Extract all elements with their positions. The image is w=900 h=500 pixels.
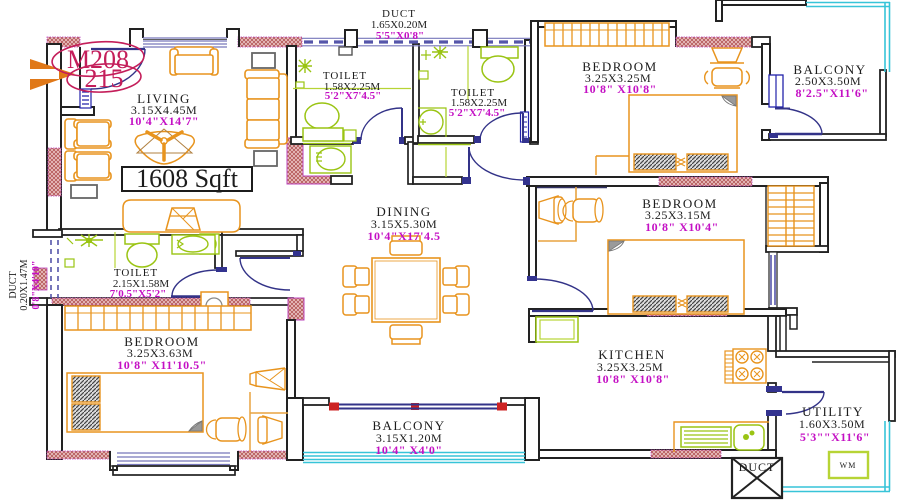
svg-text:7'0.5"X5'2": 7'0.5"X5'2" [110, 288, 167, 300]
svg-text:10'4"X17'4.5: 10'4"X17'4.5 [368, 229, 441, 243]
svg-text:DUCT: DUCT [739, 460, 776, 474]
svg-text:8'2.5"X11'6": 8'2.5"X11'6" [796, 86, 869, 100]
svg-text:1608 Sqft: 1608 Sqft [136, 164, 239, 193]
svg-text:10'8" X10'8": 10'8" X10'8" [596, 372, 670, 386]
svg-text:DUCT: DUCT [8, 271, 19, 298]
svg-text:215: 215 [85, 64, 124, 93]
svg-text:0.20X1.47M: 0.20X1.47M [19, 259, 30, 310]
svg-text:5'3""X11'6": 5'3""X11'6" [800, 430, 870, 444]
svg-text:WM: WM [840, 461, 857, 470]
svg-text:5'2"X7'4.5": 5'2"X7'4.5" [449, 107, 506, 119]
svg-text:5'5"X0'8": 5'5"X0'8" [376, 30, 424, 42]
svg-text:10'8" X10'8": 10'8" X10'8" [583, 82, 657, 96]
svg-text:5'2"X7'4.5": 5'2"X7'4.5" [325, 90, 382, 102]
svg-text:1.60X3.50M: 1.60X3.50M [799, 417, 865, 431]
svg-text:10'8" X11'10.5": 10'8" X11'10.5" [117, 358, 207, 372]
svg-text:0'8"X4'10": 0'8"X4'10" [31, 261, 42, 310]
svg-text:10'8" X10'4": 10'8" X10'4" [645, 220, 719, 234]
svg-text:10'4"X14'7": 10'4"X14'7" [129, 114, 199, 128]
svg-text:10'4" X4'0": 10'4" X4'0" [375, 443, 442, 457]
